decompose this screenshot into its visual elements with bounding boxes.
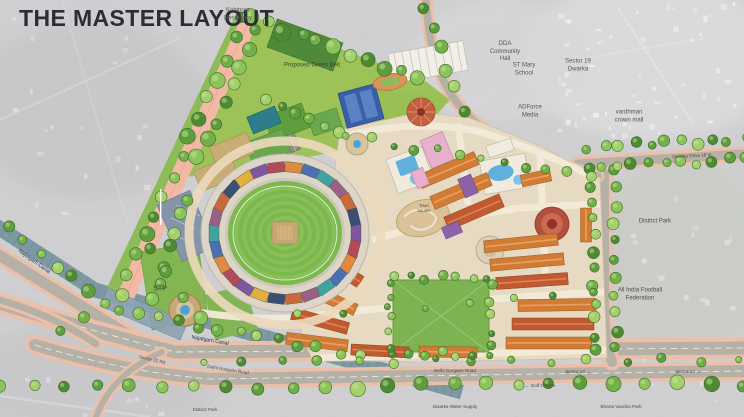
master-plan-map	[0, 0, 744, 417]
central-park-square	[393, 280, 489, 352]
page-title: THE MASTER LAYOUT	[19, 5, 274, 32]
leader-line	[160, 189, 161, 225]
cricket-stadium	[189, 141, 381, 325]
master-layout-plan: THE MASTER LAYOUT Kohinoor Residency DDA…	[0, 0, 744, 417]
